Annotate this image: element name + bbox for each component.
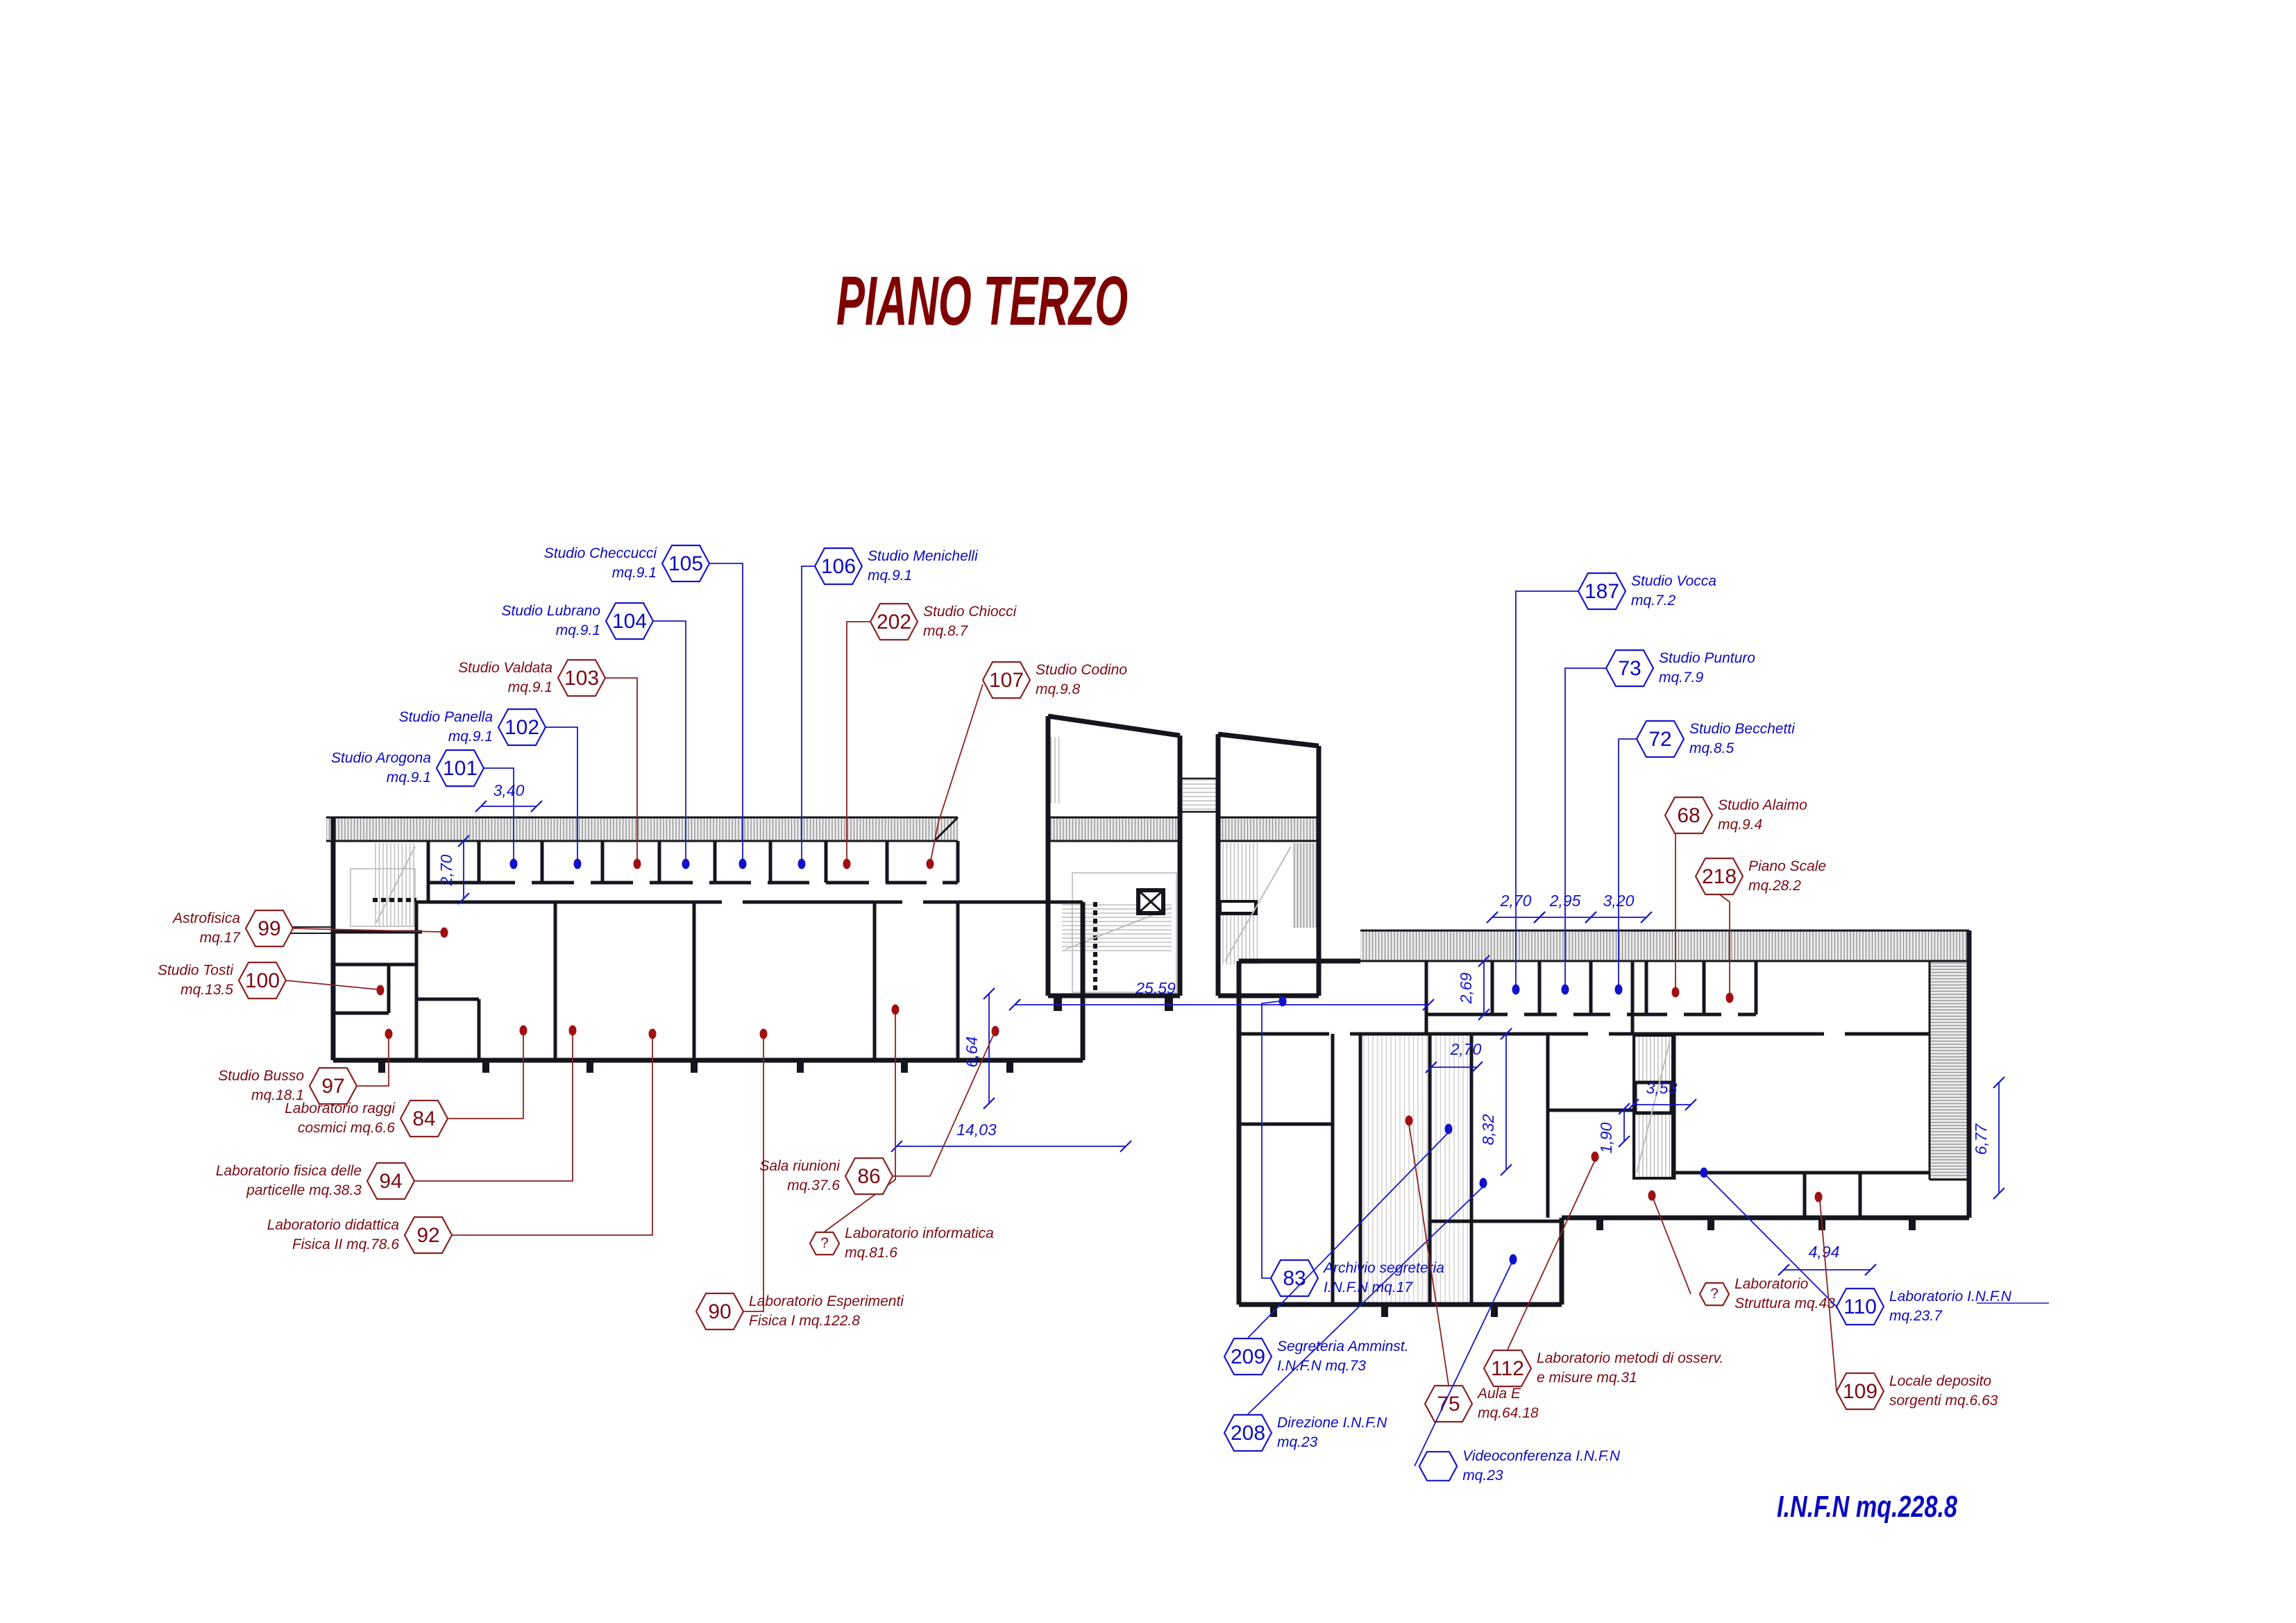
room-label: mq.9.4 [1718, 817, 1762, 833]
room-label: mq.9.1 [387, 770, 431, 785]
leader-line [452, 1037, 652, 1235]
room-label: Studio Alaimo [1718, 797, 1807, 813]
room-dot [385, 1029, 393, 1039]
leader-line [1508, 1160, 1595, 1350]
room-label: Laboratorio metodi di osserv. [1537, 1350, 1723, 1366]
room-number: 107 [989, 669, 1024, 692]
room-label: Direzione I.N.F.N [1277, 1415, 1387, 1431]
room-dot [1615, 985, 1623, 995]
room-label: mq.23 [1277, 1434, 1318, 1450]
room-label: mq.9.1 [448, 729, 493, 745]
dimension-text: 14,03 [956, 1121, 997, 1139]
room-dot [1648, 1191, 1656, 1201]
room-number: 97 [321, 1075, 344, 1098]
room-label: Studio Valdata [458, 660, 552, 676]
room-number: ? [1710, 1286, 1719, 1302]
dimension-2,69: 2,69 [1457, 955, 1489, 1020]
floorplan-page: PIANO TERZO I.N.F.N mq.228.8 3,402,7025,… [0, 0, 2296, 1623]
room-number: 103 [564, 667, 599, 690]
room-label: Piano Scale [1748, 858, 1826, 874]
room-label: mq.8.5 [1689, 740, 1734, 756]
room-label: I.N.F.N mq.73 [1277, 1358, 1366, 1374]
room-dot [927, 859, 934, 869]
room-dot [574, 859, 582, 869]
room-label: I.N.F.N mq.17 [1324, 1280, 1413, 1295]
room-label: Studio Lubrano [502, 603, 601, 619]
room-label: Laboratorio informatica [845, 1225, 994, 1241]
floor-plan-drawing: PIANO TERZO I.N.F.N mq.228.8 3,402,7025,… [0, 0, 2296, 1623]
leader-line [1665, 815, 1675, 992]
room-number: 208 [1231, 1422, 1265, 1445]
room-number: 187 [1585, 580, 1619, 603]
room-label: Studio Becchetti [1689, 721, 1796, 737]
room-label: mq.8.7 [923, 623, 969, 639]
dimension-14,03: 14,03 [891, 1121, 1131, 1152]
room-label: mq.28.2 [1748, 878, 1801, 894]
room-label: Studio Busso [218, 1068, 304, 1084]
dimension-text: 3,40 [493, 781, 525, 799]
page-title: PIANO TERZO [836, 262, 1128, 340]
room-label: mq.9.1 [612, 565, 657, 581]
room-tag-97: 97Studio Bussomq.18.1 [218, 1029, 392, 1105]
room-dot [1445, 1124, 1453, 1135]
room-number: 102 [505, 716, 539, 739]
room-label: mq.13.5 [180, 982, 233, 998]
dimension-6,64: 6,64 [963, 988, 995, 1109]
room-dot [510, 859, 518, 869]
room-label: Videoconferenza I.N.F.N [1462, 1448, 1621, 1464]
room-dot [1726, 993, 1734, 1003]
room-number: 209 [1231, 1345, 1265, 1368]
room-number: 86 [857, 1165, 880, 1188]
room-label: mq.9.1 [868, 568, 912, 584]
room-number: 94 [379, 1170, 402, 1193]
room-label: Studio Punturo [1659, 650, 1755, 666]
room-label: Locale deposito [1889, 1373, 1991, 1389]
room-number: ? [820, 1235, 829, 1251]
room-number: 90 [708, 1300, 731, 1323]
room-tag-68: 68Studio Alaimomq.9.4 [1665, 797, 1807, 998]
room-number: 109 [1843, 1380, 1877, 1403]
room-label: sorgenti mq.6.63 [1889, 1393, 1998, 1409]
room-label: Studio Chiocci [923, 604, 1018, 620]
room-number: 83 [1283, 1267, 1306, 1290]
room-number: 84 [412, 1107, 435, 1130]
room-label: particelle mq.38.3 [246, 1182, 362, 1198]
dimension-8,32: 8,32 [1479, 1028, 1512, 1175]
room-dot [1592, 1152, 1599, 1162]
room-dot [441, 928, 448, 938]
room-number-hexagon [1419, 1452, 1457, 1481]
room-label: mq.37.6 [787, 1178, 840, 1193]
room-label: Fisica II mq.78.6 [292, 1237, 399, 1252]
room-dot [520, 1026, 527, 1036]
room-label: Laboratorio fisica delle [216, 1163, 362, 1179]
leader-line [825, 1012, 895, 1232]
dimension-text: 2,70 [437, 854, 455, 886]
dimension-text: 8,32 [1479, 1114, 1497, 1145]
room-label: Struttura mq.43.5 [1734, 1295, 1848, 1311]
room-dot [739, 859, 747, 869]
room-tag-100: 100Studio Tostimq.13.5 [158, 962, 384, 999]
dimension-text: 25,59 [1135, 979, 1176, 997]
room-dot [377, 985, 385, 996]
room-label: Aula E [1476, 1386, 1521, 1402]
leader-line [1653, 1199, 1691, 1294]
room-number: 72 [1648, 728, 1671, 751]
room-label: Fisica I mq.122.8 [749, 1313, 860, 1329]
room-label: Archivio segreteria [1322, 1260, 1444, 1276]
room-dot [1510, 1255, 1517, 1265]
room-label: Studio Codino [1036, 662, 1127, 678]
room-label: mq.7.9 [1659, 670, 1704, 686]
room-dot [682, 859, 690, 869]
room-label: cosmici mq.6.6 [298, 1120, 395, 1136]
leader-line [743, 1037, 763, 1311]
dimension-text: 6,64 [963, 1037, 981, 1068]
room-number: 202 [877, 611, 911, 634]
room-label: mq.7.2 [1631, 593, 1676, 609]
room-dot [1480, 1178, 1487, 1189]
leader-line [1262, 1001, 1279, 1278]
dimension-2,70: 2,70 [437, 835, 469, 904]
room-number: 106 [821, 555, 856, 578]
room-label: mq.23 [1462, 1468, 1503, 1484]
room-label: Sala riunioni [759, 1158, 841, 1174]
room-tag-94: 94Laboratorio fisica delleparticelle mq.… [216, 1026, 577, 1200]
room-label: Laboratorio didattica [267, 1217, 399, 1233]
dimension-6,77: 6,77 [1972, 1077, 2004, 1199]
room-tag-102: 102Studio Panellamq.9.1 [399, 709, 582, 869]
room-dot [1815, 1192, 1823, 1203]
room-number: 101 [443, 757, 478, 780]
room-label: Studio Checcucci [544, 545, 658, 561]
room-dot [1562, 985, 1569, 995]
room-number: 100 [245, 969, 280, 992]
room-number: 92 [416, 1224, 439, 1247]
room-dot [1406, 1116, 1413, 1126]
leader-line [546, 727, 577, 864]
room-label: Studio Arogona [331, 750, 431, 766]
room-label: Laboratorio Esperimenti [749, 1293, 904, 1309]
room-number: 105 [668, 552, 703, 575]
room-dot [992, 1026, 999, 1037]
room-dot [649, 1029, 657, 1039]
room-label: Laboratorio I.N.F.N [1889, 1289, 2012, 1305]
room-dot [1512, 985, 1520, 995]
room-label: e misure mq.31 [1537, 1370, 1637, 1386]
dimension-text: 3,53 [1646, 1079, 1678, 1097]
room-label: mq.64.18 [1478, 1405, 1539, 1421]
dimension-3,40: 3,40 [475, 781, 542, 812]
room-number: 218 [1702, 865, 1737, 888]
dimension-4,94: 4,94 [1778, 1243, 1876, 1275]
room-label: Studio Tosti [158, 962, 234, 978]
room-tag-101: 101Studio Arogonamq.9.1 [331, 750, 518, 869]
room-dot [569, 1026, 577, 1036]
room-number: 68 [1677, 804, 1700, 827]
room-number: 73 [1618, 657, 1641, 680]
room-number: 112 [1491, 1357, 1524, 1380]
room-number: 110 [1843, 1295, 1877, 1318]
dimension-text: 1,90 [1597, 1122, 1615, 1153]
room-dot [1279, 996, 1287, 1007]
room-dot [634, 859, 641, 869]
room-dot [760, 1029, 768, 1039]
room-tag-112: 112Laboratorio metodi di osserv.e misure… [1484, 1152, 1723, 1387]
room-dot [798, 859, 806, 869]
room-label: mq.23.7 [1889, 1308, 1943, 1324]
room-dot [892, 1005, 900, 1015]
room-label: mq.17 [200, 930, 242, 946]
room-label: Segreteria Amminst. [1277, 1339, 1408, 1354]
dimension-text: 2,70 [1450, 1040, 1482, 1058]
room-label: Studio Panella [399, 709, 493, 725]
room-dot [843, 859, 851, 869]
infn-total-area: I.N.F.N mq.228.8 [1777, 1490, 1957, 1524]
room-label: Laboratorio [1734, 1276, 1809, 1292]
room-label: mq.9.1 [508, 679, 552, 695]
dimension-text: 2,69 [1457, 972, 1475, 1004]
room-label: Astrofisica [171, 910, 240, 926]
leader-line [448, 1033, 523, 1119]
room-label: Laboratorio raggi [285, 1101, 396, 1116]
room-label: mq.9.8 [1036, 681, 1081, 697]
room-label: Studio Vocca [1631, 573, 1716, 589]
room-number: 104 [612, 610, 647, 633]
dimension-text: 6,77 [1972, 1123, 1990, 1155]
room-dot [1700, 1168, 1708, 1178]
room-number: 99 [258, 917, 280, 940]
room-label: Studio Menichelli [868, 548, 979, 564]
room-label: mq.9.1 [556, 622, 600, 638]
room-dot [1672, 987, 1680, 998]
room-label: mq.81.6 [845, 1245, 897, 1261]
